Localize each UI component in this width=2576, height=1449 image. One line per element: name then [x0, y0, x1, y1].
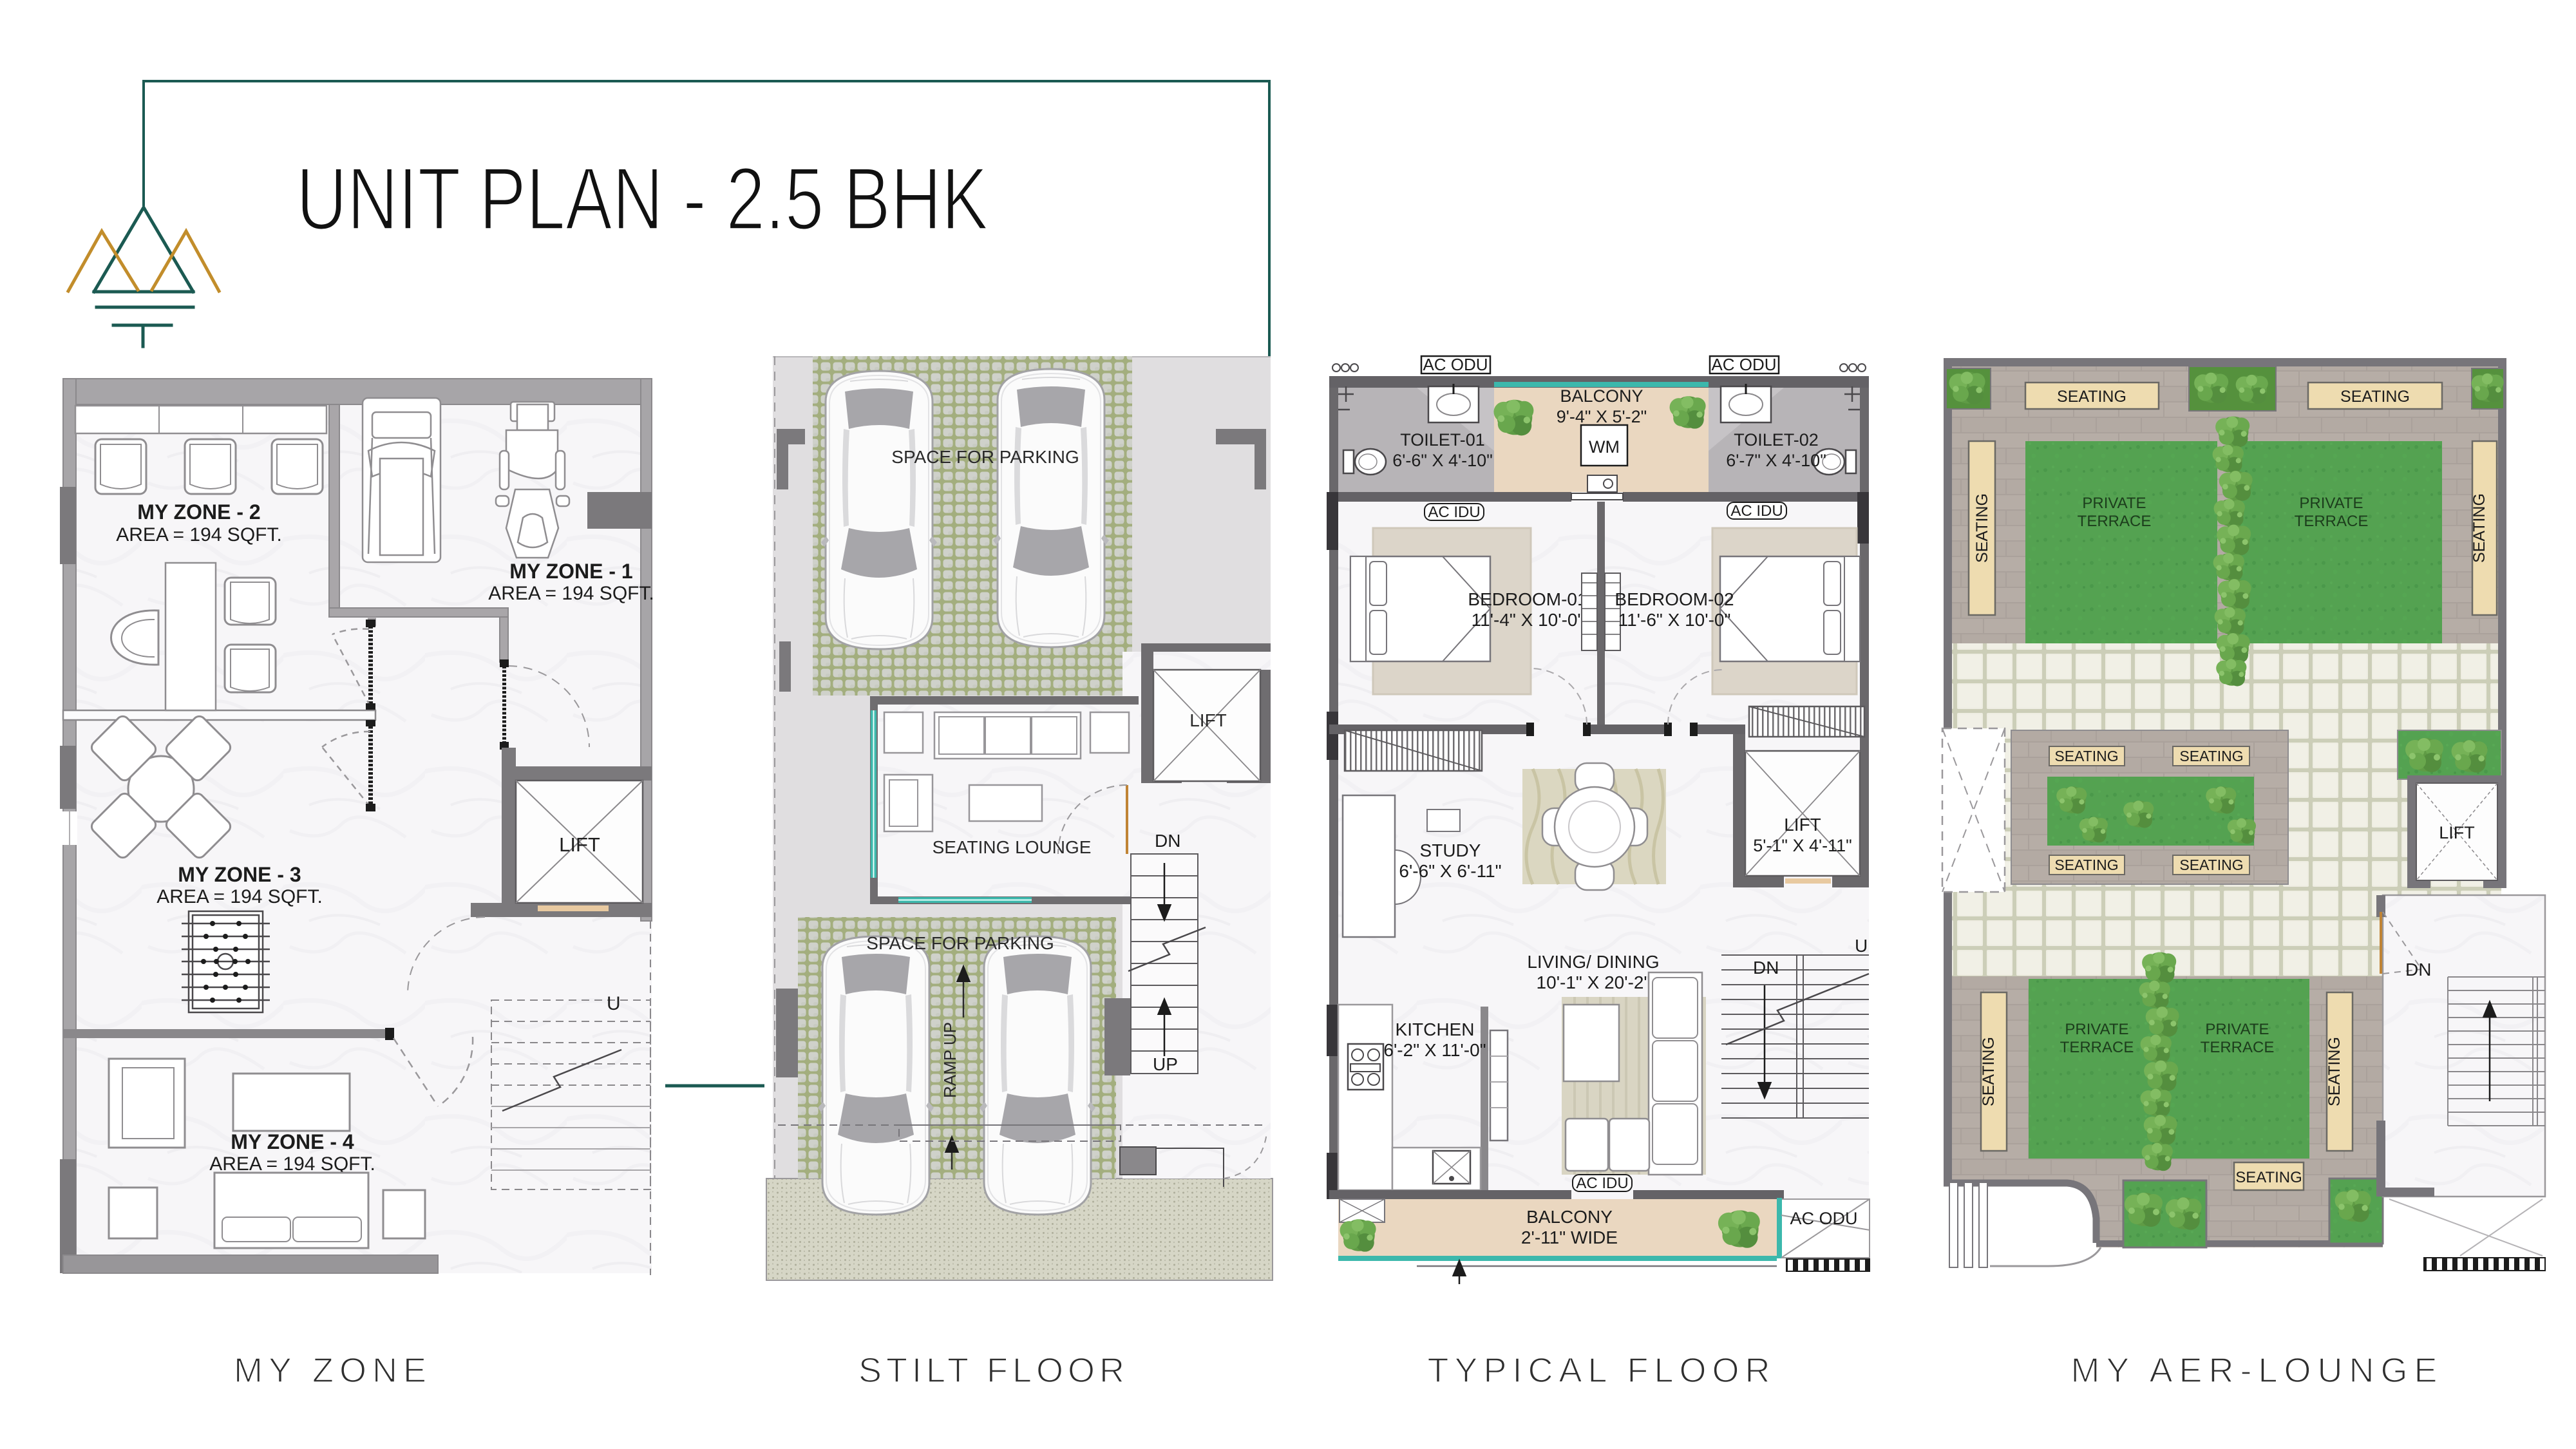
svg-text:AREA = 194 SQFT.: AREA = 194 SQFT.	[116, 524, 282, 545]
svg-text:MY AER-LOUNGE: MY AER-LOUNGE	[2070, 1351, 2443, 1390]
svg-text:MY ZONE - 2: MY ZONE - 2	[137, 500, 260, 524]
svg-text:TOILET-01: TOILET-01	[1400, 430, 1485, 450]
svg-text:SPACE FOR PARKING: SPACE FOR PARKING	[891, 447, 1079, 467]
svg-text:PRIVATE: PRIVATE	[2065, 1021, 2128, 1038]
svg-text:WM: WM	[1589, 437, 1620, 457]
svg-text:KITCHEN: KITCHEN	[1396, 1019, 1475, 1039]
svg-text:SEATING: SEATING	[1973, 493, 1991, 563]
svg-text:MY ZONE - 1: MY ZONE - 1	[509, 560, 632, 583]
svg-text:9'-4" X 5'-2": 9'-4" X 5'-2"	[1557, 407, 1647, 426]
svg-text:SEATING: SEATING	[1980, 1037, 1998, 1106]
svg-text:BEDROOM-01: BEDROOM-01	[1468, 589, 1587, 609]
svg-text:6'-6" X 4'-10": 6'-6" X 4'-10"	[1392, 451, 1493, 470]
svg-text:2'-11" WIDE: 2'-11" WIDE	[1521, 1227, 1618, 1247]
svg-text:LIFT: LIFT	[1189, 710, 1227, 730]
svg-text:11'-6" X 10'-0": 11'-6" X 10'-0"	[1618, 610, 1731, 630]
svg-text:PRIVATE: PRIVATE	[2205, 1021, 2269, 1038]
svg-text:SEATING: SEATING	[2054, 857, 2118, 873]
svg-text:RAMP UP: RAMP UP	[940, 1022, 960, 1098]
svg-text:DN: DN	[1753, 958, 1779, 978]
svg-text:LIFT: LIFT	[2439, 823, 2475, 842]
svg-text:U: U	[1855, 936, 1868, 956]
svg-text:AC IDU: AC IDU	[1576, 1175, 1628, 1192]
svg-text:SEATING: SEATING	[2470, 493, 2488, 563]
svg-text:AC IDU: AC IDU	[1730, 502, 1783, 520]
svg-text:SEATING: SEATING	[2057, 388, 2126, 406]
svg-text:SEATING: SEATING	[2179, 857, 2243, 873]
svg-text:TYPICAL FLOOR: TYPICAL FLOOR	[1427, 1351, 1776, 1390]
svg-text:MY ZONE: MY ZONE	[234, 1351, 432, 1390]
svg-text:10'-1" X 20'-2": 10'-1" X 20'-2"	[1537, 972, 1651, 992]
svg-text:AREA = 194 SQFT.: AREA = 194 SQFT.	[488, 583, 654, 604]
svg-text:11'-4" X 10'-0": 11'-4" X 10'-0"	[1472, 610, 1584, 630]
svg-text:LIFT: LIFT	[1784, 815, 1821, 835]
svg-text:TERRACE: TERRACE	[2201, 1039, 2275, 1056]
svg-text:STILT FLOOR: STILT FLOOR	[858, 1351, 1129, 1390]
svg-text:5'-1" X 4'-11": 5'-1" X 4'-11"	[1753, 836, 1852, 855]
svg-text:AREA = 194 SQFT.: AREA = 194 SQFT.	[209, 1153, 375, 1175]
svg-text:MY ZONE - 3: MY ZONE - 3	[178, 863, 301, 886]
svg-text:SEATING: SEATING	[2054, 748, 2118, 764]
svg-text:SEATING: SEATING	[2179, 748, 2243, 764]
svg-text:AC ODU: AC ODU	[1711, 355, 1776, 374]
svg-text:SEATING LOUNGE: SEATING LOUNGE	[933, 837, 1092, 857]
svg-text:LIFT: LIFT	[559, 833, 600, 856]
svg-text:BALCONY: BALCONY	[1526, 1207, 1613, 1227]
svg-text:PRIVATE: PRIVATE	[2082, 495, 2146, 512]
svg-text:MY ZONE - 4: MY ZONE - 4	[231, 1130, 354, 1153]
svg-text:SEATING: SEATING	[2235, 1169, 2302, 1186]
svg-text:6'-7" X 4'-10": 6'-7" X 4'-10"	[1726, 451, 1826, 470]
svg-text:U: U	[607, 993, 621, 1014]
svg-text:DN: DN	[1155, 831, 1180, 851]
svg-text:AC ODU: AC ODU	[1790, 1209, 1857, 1228]
svg-text:UP: UP	[1153, 1054, 1178, 1074]
svg-text:TERRACE: TERRACE	[2060, 1039, 2134, 1056]
svg-text:AC ODU: AC ODU	[1423, 355, 1488, 374]
svg-text:TERRACE: TERRACE	[2078, 513, 2152, 530]
svg-text:AREA = 194 SQFT.: AREA = 194 SQFT.	[156, 886, 323, 907]
svg-text:LIVING/ DINING: LIVING/ DINING	[1527, 952, 1659, 972]
svg-text:STUDY: STUDY	[1420, 840, 1481, 860]
svg-text:BEDROOM-02: BEDROOM-02	[1615, 589, 1734, 609]
svg-text:6'-6" X 6'-11": 6'-6" X 6'-11"	[1399, 861, 1501, 881]
svg-text:TOILET-02: TOILET-02	[1734, 430, 1819, 450]
svg-text:SEATING: SEATING	[2340, 388, 2410, 406]
svg-text:DN: DN	[2405, 960, 2431, 980]
svg-text:UNIT PLAN - 2.5 BHK: UNIT PLAN - 2.5 BHK	[296, 149, 989, 249]
svg-text:PRIVATE: PRIVATE	[2299, 495, 2363, 512]
svg-text:6'-2" X 11'-0": 6'-2" X 11'-0"	[1383, 1040, 1486, 1060]
svg-text:BALCONY: BALCONY	[1560, 386, 1643, 406]
svg-text:SPACE FOR PARKING: SPACE FOR PARKING	[866, 933, 1054, 953]
svg-text:TERRACE: TERRACE	[2295, 513, 2369, 530]
svg-text:SEATING: SEATING	[2325, 1037, 2344, 1106]
svg-text:AC IDU: AC IDU	[1428, 504, 1480, 521]
